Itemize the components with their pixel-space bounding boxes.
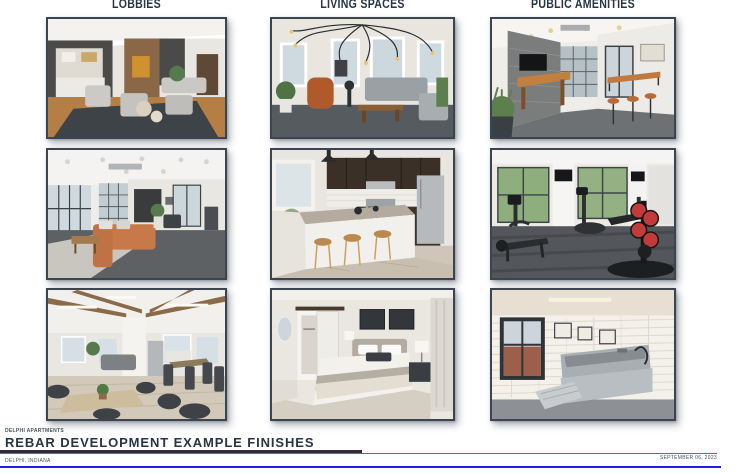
bedroom-illustration [272,290,453,419]
coworking-lounge-illustration [48,150,225,278]
living-room-illustration [272,19,453,137]
kitchen-illustration [272,150,453,278]
fitness-center-illustration [492,150,674,278]
photo-lobby-2 [46,148,227,280]
column-header-lobbies: LOBBIES [53,0,220,11]
photo-public-amenity-2 [490,148,676,280]
photo-living-space-3 [270,288,455,421]
pet-wash-illustration [492,290,674,419]
lobby-lounge-illustration [48,19,225,137]
photo-public-amenity-1 [490,17,676,139]
project-label: DELPHI APARTMENTS [5,428,64,434]
date-label: SEPTEMBER 06, 2023 [0,455,717,461]
photo-lobby-3 [46,288,227,421]
column-header-living-spaces: LIVING SPACES [277,0,447,11]
photo-public-amenity-3 [490,288,676,421]
slide-title: REBAR DEVELOPMENT EXAMPLE FINISHES [5,435,314,450]
column-header-public-amenities: PUBLIC AMENITIES [497,0,668,11]
blue-rule [0,466,721,468]
photo-lobby-1 [46,17,227,139]
finish-board-slide: LOBBIES LIVING SPACES PUBLIC AMENITIES [0,0,753,474]
resident-lounge-illustration [48,290,225,419]
dark-rule [0,450,362,453]
photo-living-space-2 [270,148,455,280]
photo-living-space-1 [270,17,455,139]
game-room-illustration [492,19,674,137]
